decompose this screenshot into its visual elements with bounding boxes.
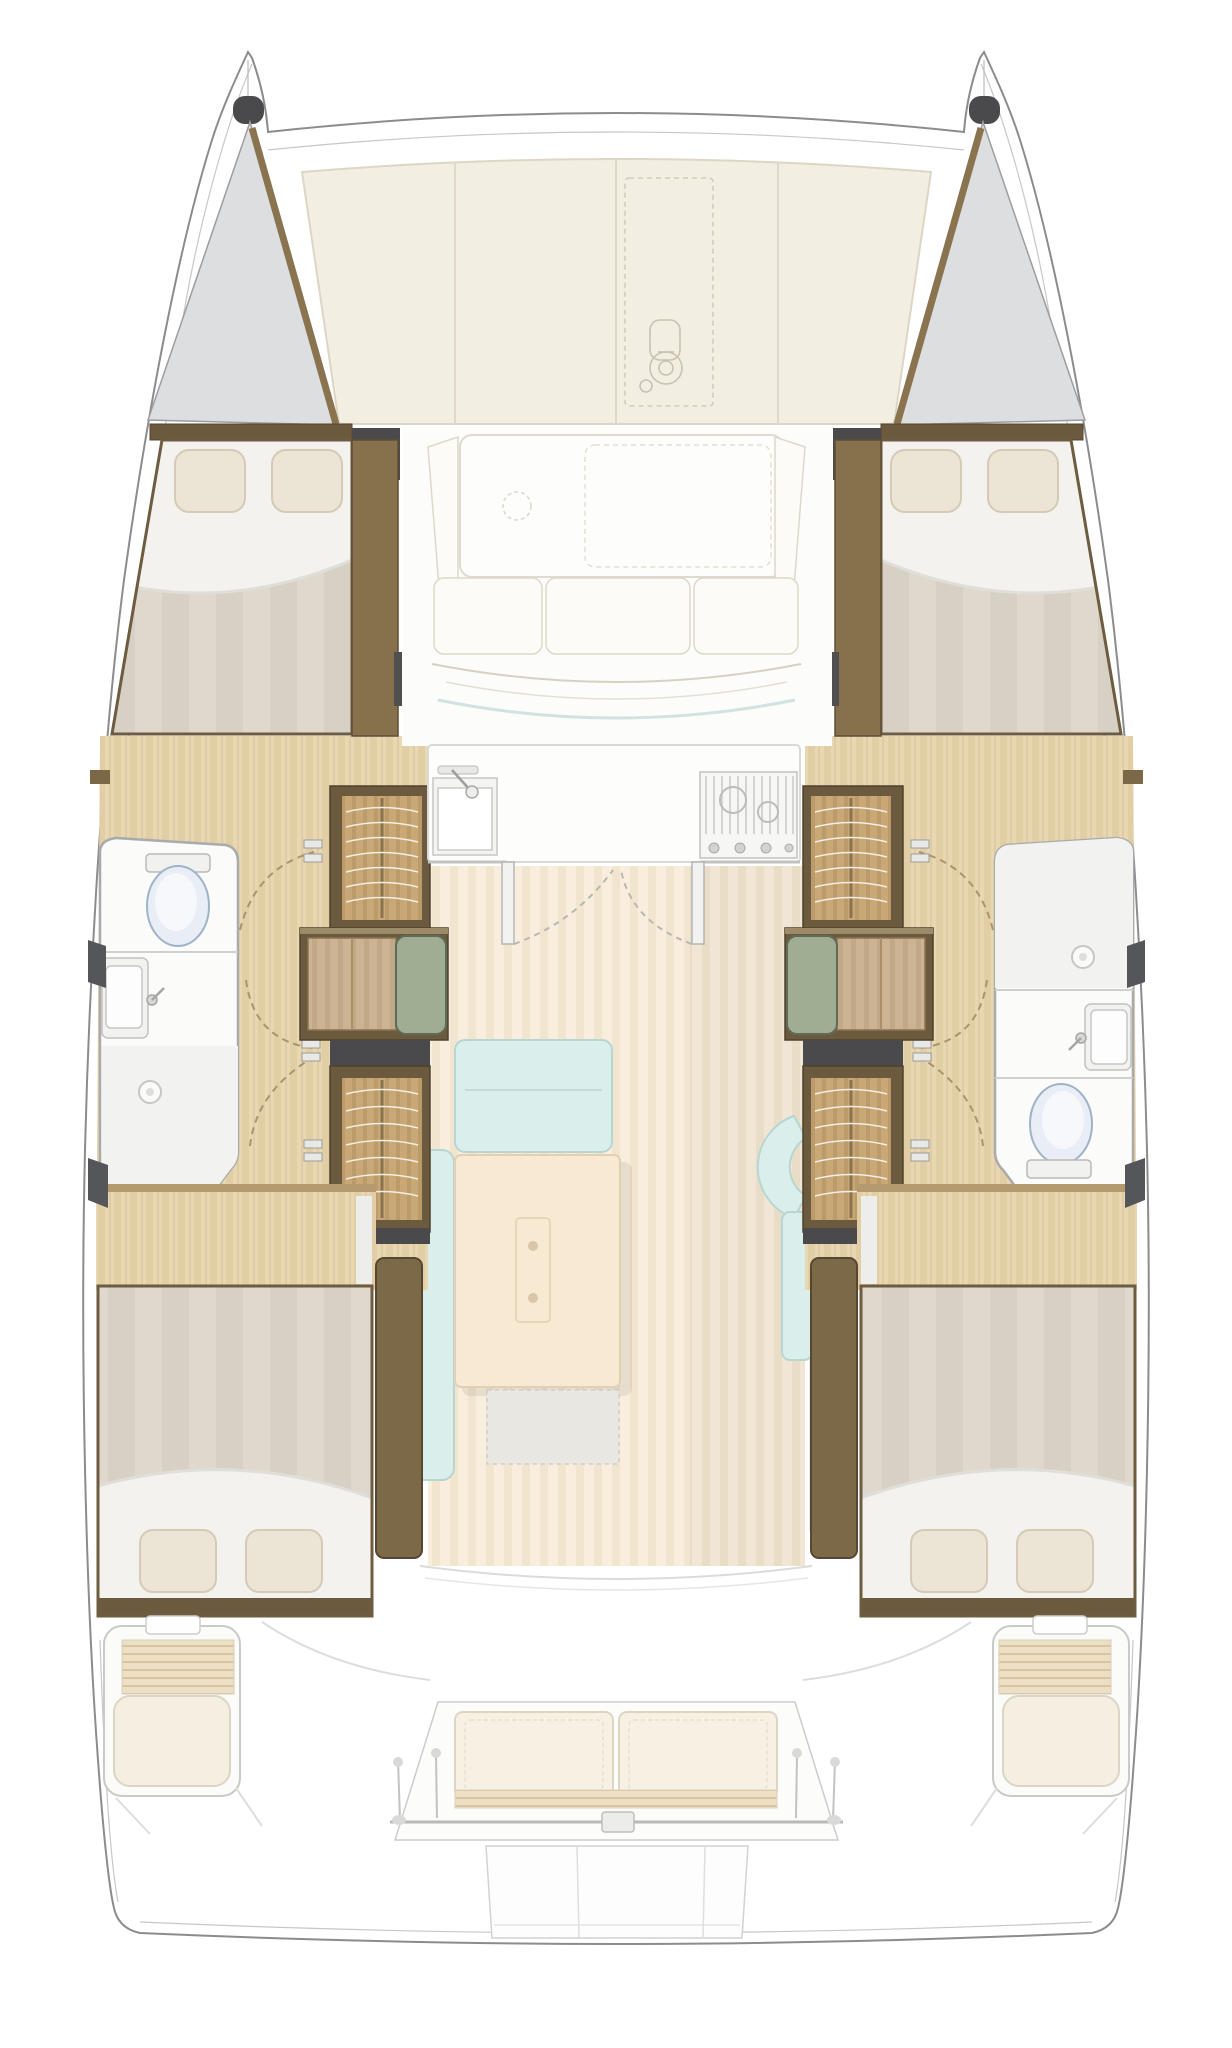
seat-cushion — [1003, 1696, 1119, 1786]
pillow — [1017, 1530, 1093, 1592]
bed-footboard — [861, 1598, 1135, 1616]
lounge-cushion — [434, 578, 542, 654]
shower-drain-center — [146, 1088, 154, 1096]
aft-cabin-inboard-wall — [376, 1258, 422, 1558]
stove-knob — [785, 844, 793, 852]
sink-basin — [438, 788, 492, 850]
vanity-seat-unit — [785, 928, 933, 1040]
sofa-bench — [455, 1040, 612, 1152]
pillow — [246, 1530, 322, 1592]
upper-wardrobe — [330, 786, 430, 930]
side-trim-dark — [88, 1158, 108, 1208]
forward-lounge — [402, 426, 832, 746]
table-rug — [487, 1390, 619, 1464]
pillow — [988, 450, 1058, 512]
foredeck — [302, 159, 931, 424]
seat-slats — [122, 1640, 234, 1694]
washbasin — [1091, 1010, 1127, 1064]
toilet-bowl — [1042, 1091, 1084, 1149]
bed-footboard — [98, 1598, 372, 1616]
forward-bulkhead-bar — [150, 424, 352, 440]
lounge-cushion — [546, 578, 690, 654]
stove-knob — [735, 843, 745, 853]
upper-wardrobe — [803, 786, 903, 930]
forward-bulkhead-bar — [881, 424, 1083, 440]
salon — [380, 866, 853, 1566]
washbasin — [106, 966, 142, 1028]
vanity-seat-unit — [300, 928, 448, 1040]
aft-cabin-floor-band — [96, 1184, 376, 1192]
galley-sink — [433, 766, 497, 855]
port-bow-cap — [233, 96, 264, 124]
bench-cushion — [455, 1712, 613, 1798]
shower-drain-center — [1079, 953, 1087, 961]
side-console — [146, 1616, 200, 1634]
forward-cabin-locker-band — [835, 440, 881, 736]
bench-slat-front — [455, 1790, 777, 1808]
forward-sunpad — [460, 435, 783, 577]
stove-knob — [709, 843, 719, 853]
aft-cabin-double-berth — [98, 1286, 372, 1616]
tap-base — [438, 766, 478, 774]
table-leg-bolt — [528, 1293, 538, 1303]
tap-head — [466, 786, 478, 798]
table-top — [455, 1155, 620, 1387]
wardrobe-gap-shadow — [330, 1040, 430, 1066]
rail-center-clamp — [602, 1812, 634, 1832]
aft-cabin-inboard-wall — [811, 1258, 857, 1558]
aft-cabin-step-strip — [356, 1196, 372, 1284]
side-trim-dark — [1127, 940, 1145, 988]
aft-cabin-wood-floor — [96, 1192, 376, 1288]
aft-cabin-wood-floor — [857, 1192, 1137, 1288]
green-cushion — [396, 936, 446, 1034]
seat-cushion — [114, 1696, 230, 1786]
toilet-tank — [1027, 1160, 1091, 1178]
pillow — [911, 1530, 987, 1592]
shower-floor — [995, 838, 1133, 988]
aft-bench — [390, 1702, 843, 1840]
pillow — [140, 1530, 216, 1592]
coffee-table — [455, 1155, 632, 1396]
catamaran-floor-plan — [0, 0, 1232, 2048]
green-cushion — [787, 936, 837, 1034]
galley-stove-icon — [700, 772, 797, 858]
toilet-bowl — [155, 873, 197, 931]
side-trim-dark — [1125, 1158, 1145, 1208]
aft-cabin-step-strip — [861, 1196, 877, 1284]
floor-plan-page — [0, 0, 1232, 2048]
seat-slats — [999, 1640, 1111, 1694]
door-leaf — [692, 862, 704, 944]
swim-platform — [486, 1846, 748, 1938]
door-leaf — [502, 862, 514, 944]
aft-cabin-floor-band — [857, 1184, 1137, 1192]
side-trim-wood — [90, 770, 110, 784]
forward-cabin-locker-band — [352, 440, 398, 736]
pillow — [272, 450, 342, 512]
lounge-cushion — [694, 578, 798, 654]
table-leg-bolt — [528, 1241, 538, 1251]
side-console — [1033, 1616, 1087, 1634]
side-trim-dark — [88, 940, 106, 988]
aft-cabin-double-berth — [861, 1286, 1135, 1616]
pillow — [175, 450, 245, 512]
wardrobe-gap-shadow — [803, 1040, 903, 1066]
stove-knob — [761, 843, 771, 853]
starboard-bow-cap — [969, 96, 1000, 124]
side-trim-wood — [1123, 770, 1143, 784]
bench-cushion — [619, 1712, 777, 1798]
pillow — [891, 450, 961, 512]
